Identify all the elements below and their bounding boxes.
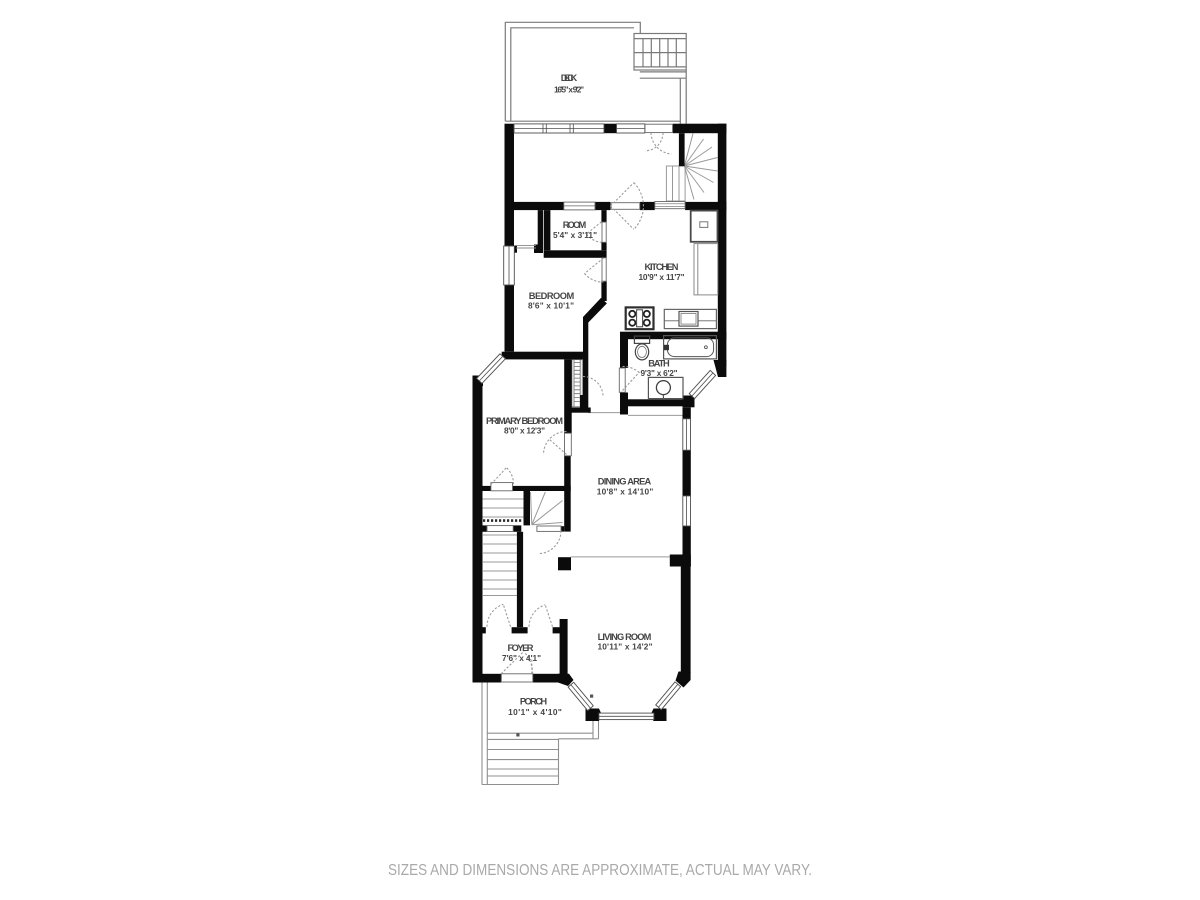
- svg-text:8'6" x 10'1": 8'6" x 10'1": [528, 301, 574, 311]
- svg-text:7'6" x 4'1": 7'6" x 4'1": [502, 653, 541, 663]
- svg-text:PORCH: PORCH: [520, 696, 547, 706]
- svg-text:ROOM: ROOM: [563, 220, 587, 230]
- svg-text:5'4" x 3'11": 5'4" x 3'11": [553, 230, 597, 240]
- svg-text:10'11" x 14'2": 10'11" x 14'2": [598, 642, 653, 652]
- svg-text:KITCHEN: KITCHEN: [645, 262, 679, 272]
- svg-text:BEDROOM: BEDROOM: [529, 291, 575, 301]
- svg-text:DINING AREA: DINING AREA: [598, 476, 652, 486]
- svg-text:FOYER: FOYER: [508, 643, 534, 653]
- svg-text:10'1" x 4'10": 10'1" x 4'10": [508, 707, 562, 717]
- svg-text:SIZES AND DIMENSIONS ARE APPRO: SIZES AND DIMENSIONS ARE APPROXIMATE, AC…: [388, 862, 812, 879]
- svg-text:LIVING ROOM: LIVING ROOM: [598, 632, 652, 642]
- svg-text:PRIMARY BEDROOM: PRIMARY BEDROOM: [486, 416, 563, 426]
- svg-text:BATH: BATH: [648, 359, 670, 369]
- svg-text:8'0" x 12'3": 8'0" x 12'3": [504, 426, 545, 436]
- svg-text:10'9" x 11'7": 10'9" x 11'7": [639, 272, 685, 282]
- svg-text:10'8" x 14'10": 10'8" x 14'10": [597, 486, 654, 496]
- svg-text:9'3" x 6'2": 9'3" x 6'2": [641, 368, 678, 378]
- svg-text:DECK: DECK: [561, 73, 578, 83]
- svg-text:16'5" x 9'2": 16'5" x 9'2": [554, 85, 584, 95]
